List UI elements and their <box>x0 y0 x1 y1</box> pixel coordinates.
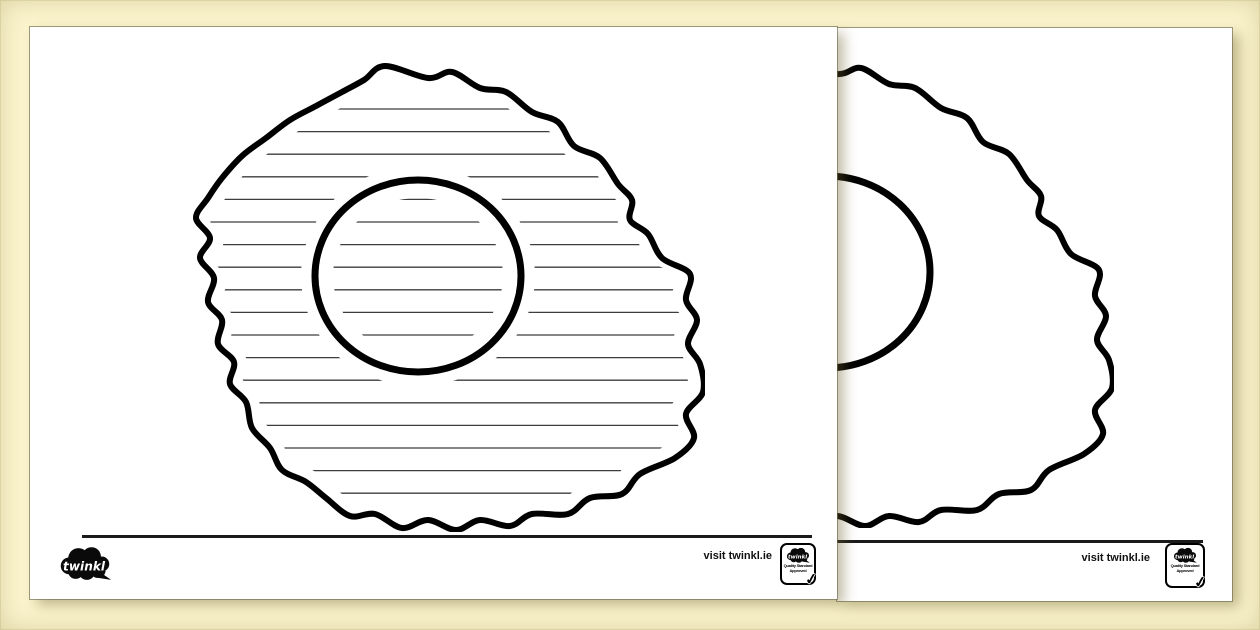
badge-approval-line2: Approved <box>1176 569 1193 574</box>
badge-check-icon: ✓ <box>804 569 819 589</box>
egg-yolk-outline <box>837 176 930 368</box>
egg-yolk-outline <box>315 180 521 372</box>
footer-divider <box>837 540 1203 543</box>
egg-writing-frame-lined <box>170 62 705 532</box>
visit-link-text: visit twinkl.ie <box>704 550 772 562</box>
badge-cloud-text: twinkl <box>788 554 807 560</box>
badge-check-icon: ✓ <box>1193 572 1208 592</box>
twinkl-logo-text: twinkl <box>63 560 106 574</box>
badge-cloud-text: twinkl <box>1175 554 1194 560</box>
worksheet-page-back: visit twinkl.ie twinkl Quality Standard … <box>837 28 1232 601</box>
quality-approved-badge: twinkl Quality Standard Approved ✓ <box>1165 543 1205 588</box>
footer-divider <box>82 535 812 538</box>
quality-approved-badge: twinkl Quality Standard Approved ✓ <box>780 543 816 585</box>
egg-svg <box>837 58 1114 528</box>
visit-link-text: visit twinkl.ie <box>1082 552 1150 564</box>
badge-cloud-icon: twinkl <box>785 547 811 564</box>
egg-writing-frame-blank <box>837 58 1114 528</box>
worksheet-page-front: twinkl visit twinkl.ie twinkl Quality St… <box>30 27 837 599</box>
egg-svg <box>170 62 705 532</box>
twinkl-logo: twinkl <box>57 545 113 583</box>
badge-cloud-icon: twinkl <box>1172 547 1198 564</box>
